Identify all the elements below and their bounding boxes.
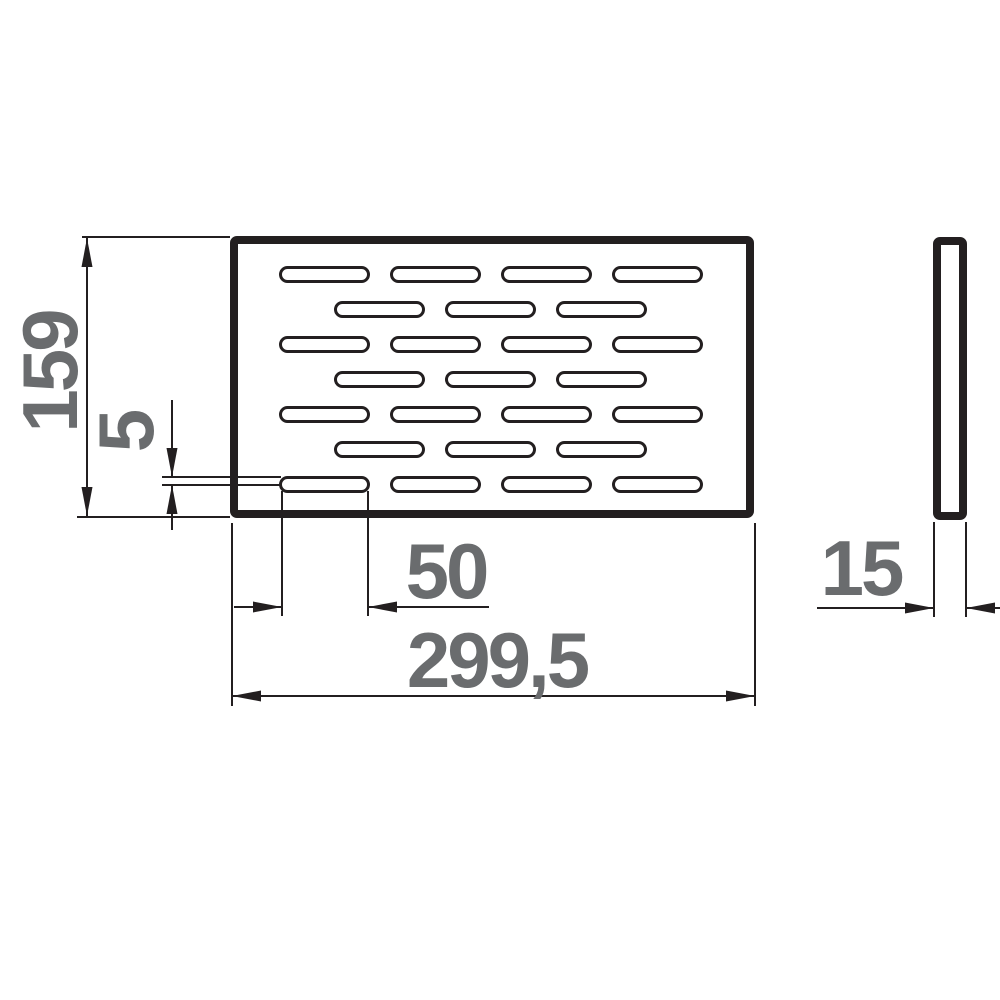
slot <box>503 338 591 352</box>
dimension-label-width: 299,5 <box>407 616 589 704</box>
dimension-label-slot-height: 5 <box>82 410 170 452</box>
slot <box>558 373 646 387</box>
arrowhead-left-icon <box>368 602 397 613</box>
slots <box>281 268 702 492</box>
arrowhead-up-icon <box>82 238 93 267</box>
slot <box>503 408 591 422</box>
arrowhead-down-icon <box>82 487 93 516</box>
side-view <box>937 241 963 516</box>
dimension-height: 159 <box>6 237 230 517</box>
slot <box>614 268 702 282</box>
slot <box>503 268 591 282</box>
dimension-width: 299,5 <box>232 523 755 706</box>
dimension-label-height: 159 <box>6 311 94 433</box>
arrowhead-right-icon <box>905 603 934 614</box>
arrowhead-left-icon <box>966 603 995 614</box>
dimension-label-slot-length: 50 <box>406 527 487 615</box>
slot <box>392 338 480 352</box>
slot <box>392 268 480 282</box>
slot <box>447 303 535 317</box>
arrowhead-up-icon <box>167 485 178 514</box>
slot <box>281 408 369 422</box>
slot <box>447 443 535 457</box>
slot <box>336 443 424 457</box>
slot <box>447 373 535 387</box>
slot <box>614 338 702 352</box>
arrowhead-right-icon <box>253 602 282 613</box>
slot <box>503 478 591 492</box>
slot <box>281 478 369 492</box>
front-view <box>234 240 750 514</box>
side-view-plate-outline <box>937 241 963 516</box>
slot <box>614 408 702 422</box>
arrowhead-right-icon <box>726 691 755 702</box>
technical-drawing-canvas: 159 5 50 299,5 <box>0 0 1000 1000</box>
slot <box>614 478 702 492</box>
arrowhead-left-icon <box>232 691 261 702</box>
slot <box>281 338 369 352</box>
slot <box>392 478 480 492</box>
dimension-label-thickness: 15 <box>821 524 903 612</box>
slot <box>558 443 646 457</box>
dimension-drawing: 159 5 50 299,5 <box>0 0 1000 1000</box>
slot <box>281 268 369 282</box>
slot <box>392 408 480 422</box>
slot <box>336 303 424 317</box>
slot <box>336 373 424 387</box>
slot <box>558 303 646 317</box>
dimension-thickness: 15 <box>817 522 1000 617</box>
